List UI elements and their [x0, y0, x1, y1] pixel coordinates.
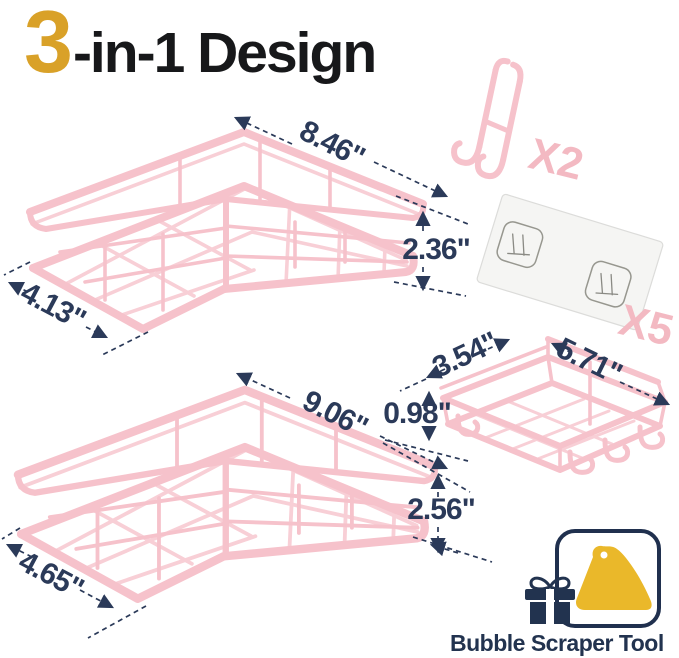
- dim-dish-depth-label: 3.54": [427, 326, 502, 384]
- diagram-canvas: 8.46" 2.36" 4.13" 9.06" 2.56": [0, 0, 679, 658]
- hook-icon: [450, 54, 523, 178]
- adhesive-count-label: X5: [614, 295, 678, 356]
- dim-bottom-height-label: 2.56": [407, 493, 475, 526]
- product-diagram: 3-in-1 Design: [0, 0, 679, 658]
- dim-dish-height-label: 0.98": [383, 397, 451, 430]
- dim-top-height-label: 2.36": [402, 233, 470, 266]
- corner-shelf-large-bottom: [18, 390, 435, 599]
- bubble-scraper-badge: Bubble Scraper Tool: [450, 531, 664, 656]
- hooks-count-label: X2: [524, 129, 588, 190]
- dim-top-depth-label: 4.13": [15, 276, 90, 337]
- badge-label: Bubble Scraper Tool: [450, 630, 664, 656]
- dimensions-top-shelf: 8.46" 2.36" 4.13": [4, 114, 470, 356]
- corner-shelf-large-top: [30, 132, 423, 329]
